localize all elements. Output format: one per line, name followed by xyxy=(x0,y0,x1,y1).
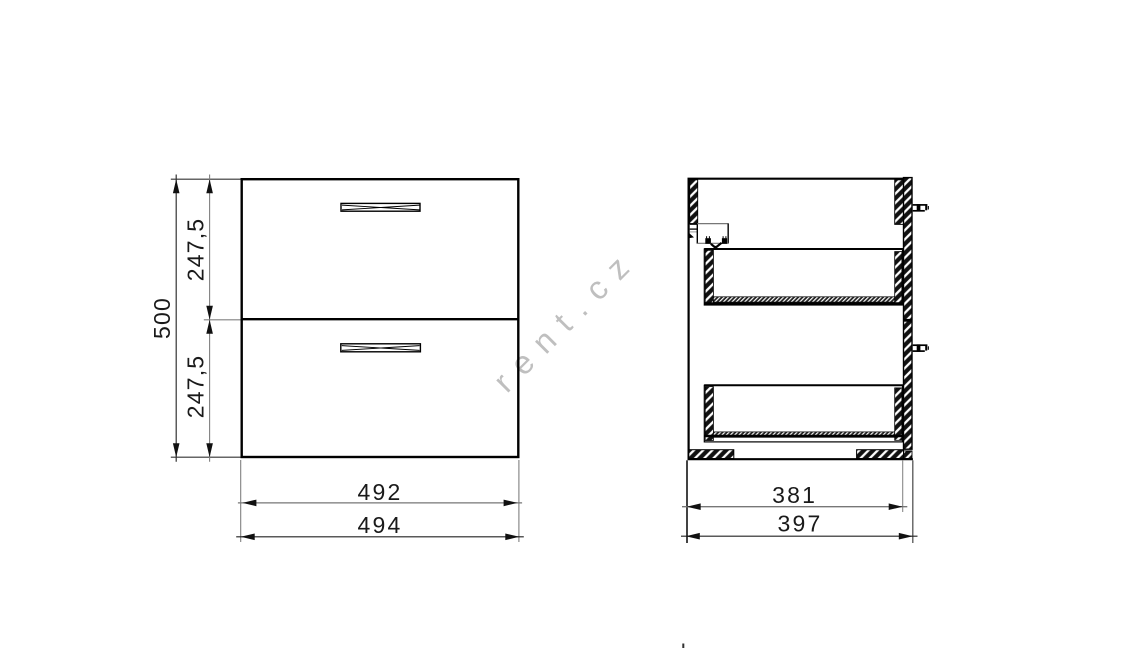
svg-text:492: 492 xyxy=(358,479,403,505)
svg-text:381: 381 xyxy=(772,482,817,508)
svg-text:247,5: 247,5 xyxy=(182,218,208,282)
svg-text:494: 494 xyxy=(358,512,403,538)
svg-text:247,5: 247,5 xyxy=(182,355,208,419)
svg-text:397: 397 xyxy=(778,511,823,537)
svg-text:500: 500 xyxy=(149,297,175,339)
